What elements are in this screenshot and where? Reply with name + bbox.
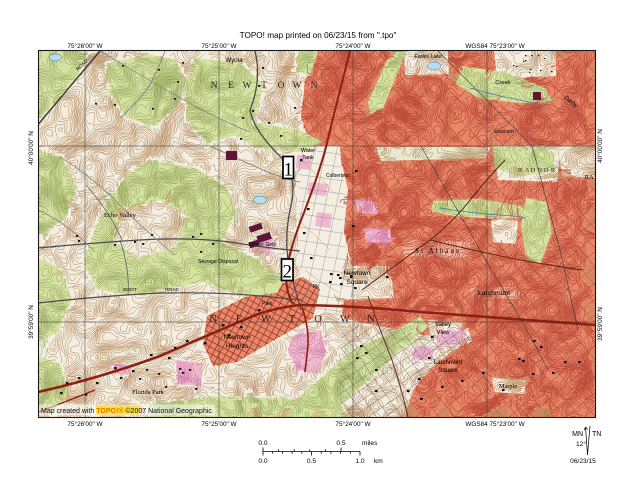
svg-text:0.5: 0.5 <box>336 440 345 447</box>
svg-text:W: W <box>243 81 252 91</box>
svg-text:T: T <box>289 314 296 325</box>
svg-text:Valley: Valley <box>435 322 451 328</box>
svg-text:Sewage Disposal: Sewage Disposal <box>198 259 238 265</box>
svg-text:O: O <box>314 314 322 325</box>
svg-text:Square: Square <box>346 279 368 286</box>
svg-text:N: N <box>209 314 217 325</box>
svg-text:N: N <box>211 81 218 91</box>
svg-text:Newtown: Newtown <box>343 270 370 277</box>
svg-text:WGS84 75°23'00" W: WGS84 75°23'00" W <box>465 420 525 428</box>
svg-text:Larchmont: Larchmont <box>478 290 510 297</box>
svg-text:N: N <box>311 81 318 91</box>
svg-text:2: 2 <box>283 262 293 283</box>
svg-text:75°25'00" W: 75°25'00" W <box>201 420 237 428</box>
svg-text:Water: Water <box>301 148 315 154</box>
svg-text:0.0: 0.0 <box>258 440 267 447</box>
svg-text:N: N <box>538 167 543 174</box>
svg-text:WGS84 75°23'00" W: WGS84 75°23'00" W <box>465 42 525 50</box>
svg-text:E: E <box>236 314 242 325</box>
svg-text:O: O <box>278 81 285 91</box>
svg-text:St Albans: St Albans <box>415 247 461 255</box>
svg-text:E: E <box>228 81 234 91</box>
svg-text:12°: 12° <box>576 440 586 448</box>
svg-text:75°24'00" W: 75°24'00" W <box>335 420 371 428</box>
svg-text:75°25'00" W: 75°25'00" W <box>201 42 237 50</box>
svg-text:39°59'00" N: 39°59'00" N <box>27 305 35 339</box>
svg-text:39°59'00" N: 39°59'00" N <box>596 307 604 341</box>
svg-text:TOPO! map printed on 06/23/15: TOPO! map printed on 06/23/15 from ".tpo… <box>240 31 397 40</box>
svg-text:O: O <box>544 167 549 174</box>
svg-text:Larchmont: Larchmont <box>434 360 463 366</box>
svg-text:W: W <box>293 81 302 91</box>
svg-text:Colbertson: Colbertson <box>326 173 350 179</box>
svg-text:A: A <box>525 167 530 174</box>
svg-text:0.0: 0.0 <box>258 458 267 465</box>
svg-text:Earles Lake: Earles Lake <box>414 54 442 60</box>
svg-text:miles: miles <box>362 440 378 447</box>
svg-text:ROAD: ROAD <box>165 287 179 293</box>
svg-text:km: km <box>374 458 383 465</box>
svg-text:Park: Park <box>262 301 273 307</box>
svg-text:Sch for Girls: Sch for Girls <box>248 242 276 248</box>
svg-text:40°00'00" N: 40°00'00" N <box>596 129 604 163</box>
svg-text:Pk: Pk <box>313 284 319 290</box>
svg-text:R: R <box>518 167 523 174</box>
svg-text:Square: Square <box>438 368 458 374</box>
svg-text:Wyola: Wyola <box>225 57 243 64</box>
svg-text:Florida Park: Florida Park <box>132 389 165 396</box>
svg-text:Map created with TOPO!® ©2007: Map created with TOPO!® ©2007 National G… <box>41 407 212 415</box>
svg-text:75°26'00" W: 75°26'00" W <box>67 42 103 50</box>
svg-text:40°00'00" N: 40°00'00" N <box>27 131 35 165</box>
svg-text:T: T <box>261 81 267 91</box>
svg-text:Heights: Heights <box>226 343 249 350</box>
svg-text:View: View <box>437 330 451 336</box>
svg-text:BOOT: BOOT <box>123 287 137 293</box>
svg-text:75°24'00" W: 75°24'00" W <box>335 42 371 50</box>
svg-text:TN: TN <box>592 431 601 438</box>
svg-text:75°26'00" W: 75°26'00" W <box>67 420 103 428</box>
svg-text:W: W <box>261 314 271 325</box>
svg-text:R: R <box>551 167 556 174</box>
svg-text:W: W <box>340 314 350 325</box>
svg-text:N: N <box>367 314 375 325</box>
svg-text:Newtown: Newtown <box>223 334 250 341</box>
svg-text:Tank: Tank <box>302 155 314 161</box>
svg-text:D: D <box>531 167 536 174</box>
svg-text:GOSHEN: GOSHEN <box>494 129 515 135</box>
svg-text:1: 1 <box>284 160 294 181</box>
svg-text:1.0: 1.0 <box>355 458 364 465</box>
svg-text:Creek: Creek <box>495 80 512 86</box>
svg-text:MN: MN <box>572 431 583 438</box>
svg-text:RA: RA <box>584 174 593 181</box>
svg-text:06/23/15: 06/23/15 <box>570 458 596 465</box>
svg-text:Echo Valley: Echo Valley <box>104 212 137 219</box>
svg-text:Marple: Marple <box>499 383 518 390</box>
svg-text:0.5: 0.5 <box>307 458 316 465</box>
